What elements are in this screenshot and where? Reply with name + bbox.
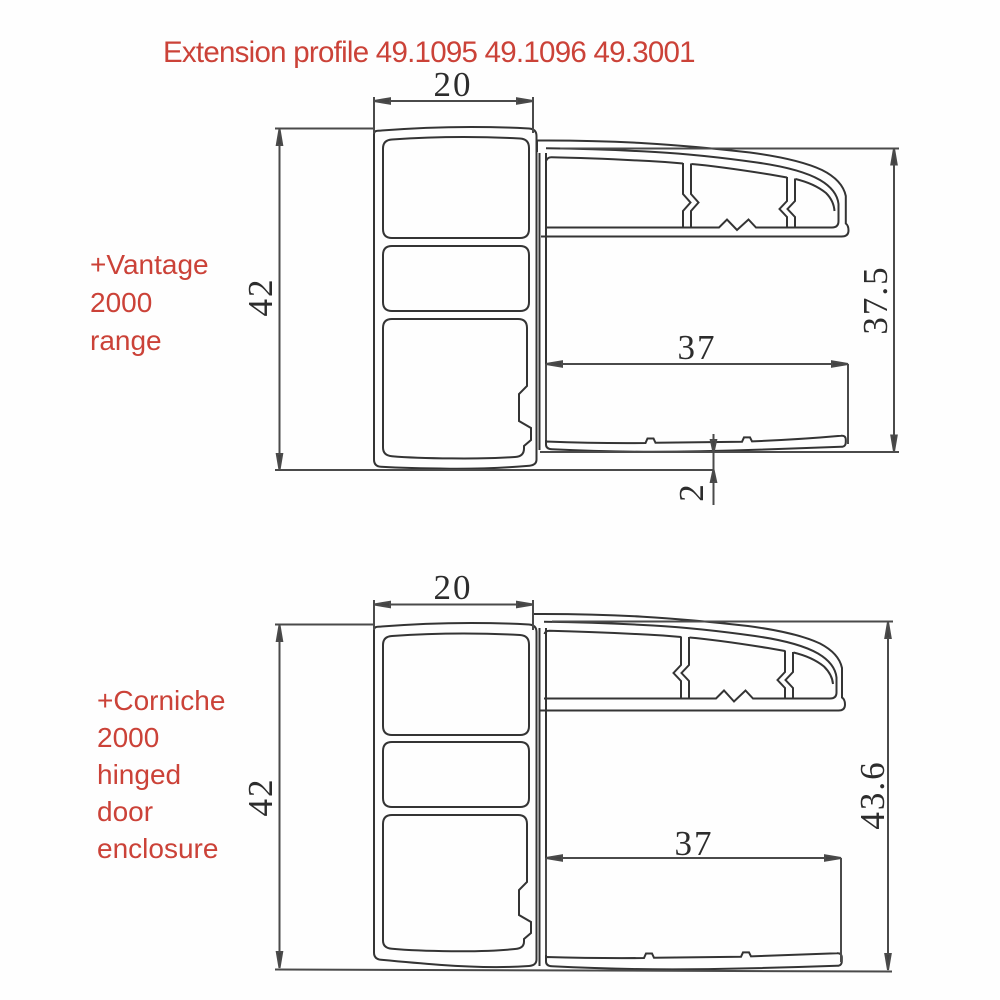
svg-text:door: door (97, 796, 153, 827)
svg-text:42: 42 (241, 278, 280, 317)
svg-text:42: 42 (241, 778, 280, 817)
svg-text:2000: 2000 (90, 287, 152, 318)
svg-text:20: 20 (434, 568, 473, 607)
svg-text:hinged: hinged (97, 759, 181, 790)
svg-text:2000: 2000 (97, 722, 159, 753)
svg-text:37: 37 (678, 328, 717, 367)
svg-text:37.5: 37.5 (856, 265, 895, 334)
svg-text:+Corniche: +Corniche (97, 685, 225, 716)
svg-text:2: 2 (672, 482, 711, 502)
svg-text:20: 20 (434, 65, 473, 104)
svg-text:range: range (90, 325, 162, 356)
svg-text:+Vantage: +Vantage (90, 249, 209, 280)
svg-text:43.6: 43.6 (853, 760, 892, 829)
svg-text:enclosure: enclosure (97, 833, 218, 864)
svg-text:Extension profile 49.1095 49.1: Extension profile 49.1095 49.1096 49.300… (163, 36, 695, 69)
svg-text:37: 37 (675, 824, 714, 863)
